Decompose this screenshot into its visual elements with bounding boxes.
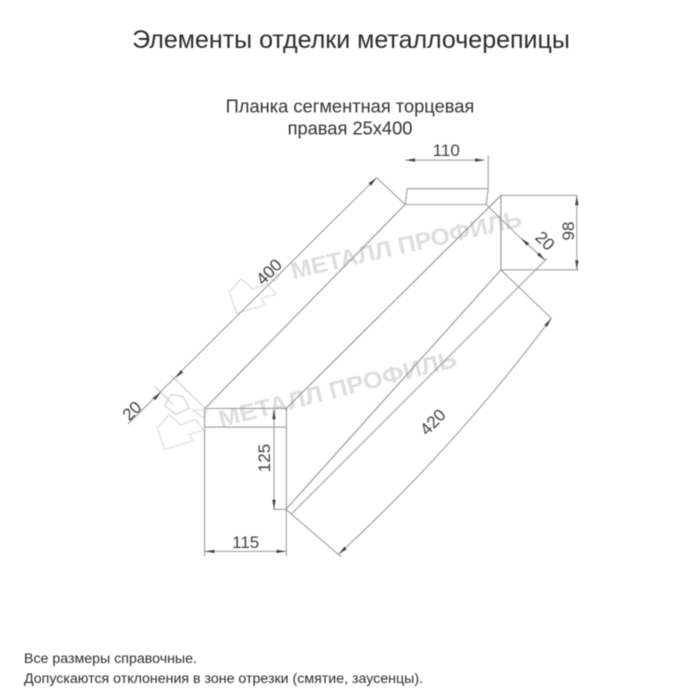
svg-text:Элементы отделки металлочерепи: Элементы отделки металлочерепицы — [132, 26, 570, 54]
svg-text:125: 125 — [255, 444, 274, 472]
svg-text:правая 25х400: правая 25х400 — [288, 118, 413, 139]
svg-text:Допускаются отклонения в зоне: Допускаются отклонения в зоне отрезки (с… — [24, 671, 423, 687]
svg-text:Планка сегментная торцевая: Планка сегментная торцевая — [226, 96, 475, 117]
svg-text:98: 98 — [559, 222, 578, 241]
svg-text:115: 115 — [232, 533, 259, 552]
svg-text:110: 110 — [433, 141, 460, 160]
svg-text:Все размеры справочные.: Все размеры справочные. — [24, 651, 197, 667]
